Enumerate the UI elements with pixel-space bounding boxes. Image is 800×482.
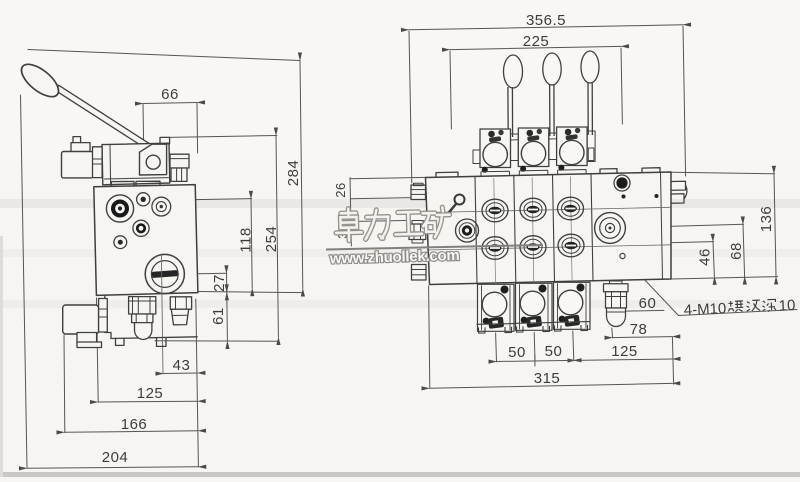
svg-text:254: 254 — [263, 226, 280, 253]
svg-text:125: 125 — [611, 343, 638, 360]
svg-text:204: 204 — [102, 449, 129, 466]
svg-text:26: 26 — [333, 182, 348, 197]
svg-text:118: 118 — [238, 227, 255, 252]
svg-text:27: 27 — [211, 274, 228, 292]
svg-text:356.5: 356.5 — [526, 12, 566, 29]
svg-text:10: 10 — [778, 297, 795, 315]
svg-text:315: 315 — [534, 370, 561, 387]
svg-text:166: 166 — [121, 416, 148, 433]
svg-text:43: 43 — [173, 357, 191, 374]
svg-text:50: 50 — [508, 344, 526, 361]
svg-text:78: 78 — [630, 321, 648, 338]
svg-text:136: 136 — [758, 206, 775, 233]
svg-text:284: 284 — [285, 160, 302, 187]
svg-text:68: 68 — [728, 242, 745, 260]
svg-text:61: 61 — [210, 307, 227, 325]
svg-text:46: 46 — [697, 248, 714, 266]
svg-text:225: 225 — [523, 33, 550, 50]
svg-text:125: 125 — [137, 385, 164, 402]
svg-text:50: 50 — [545, 343, 563, 360]
svg-text:60: 60 — [639, 295, 657, 312]
svg-text:4-M10: 4-M10 — [683, 300, 726, 319]
svg-text:66: 66 — [161, 86, 179, 103]
